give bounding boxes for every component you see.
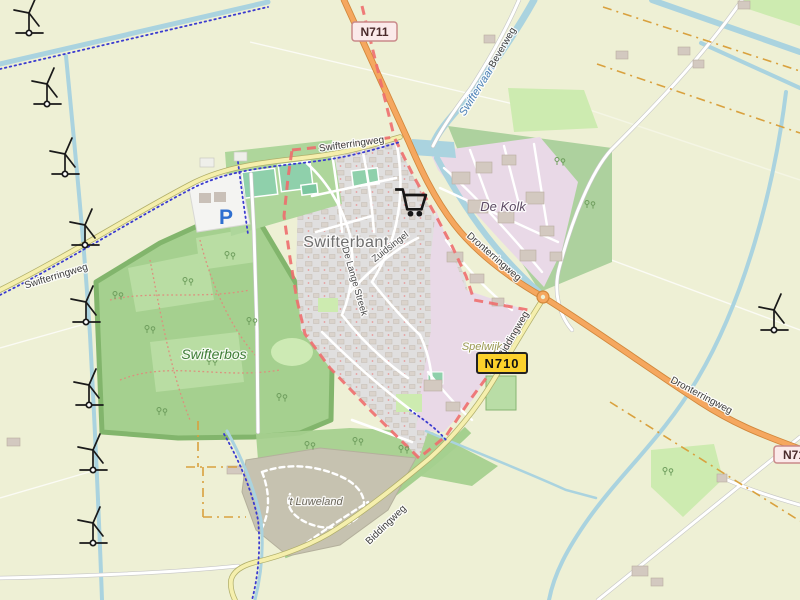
parking-icon: P — [219, 206, 233, 229]
route-badge-n710: N710 — [477, 353, 527, 373]
place-label-luweland: 't Luweland — [287, 496, 343, 508]
place-label-spelwijk: Spelwijk — [462, 341, 503, 353]
place-label-de-kolk: De Kolk — [480, 199, 527, 214]
svg-text:N710: N710 — [484, 356, 519, 371]
map-canvas[interactable]: P Swifterbant De Kolk Swifterbos Spelwij… — [0, 0, 800, 600]
route-badge-n71-partial: N71 — [774, 446, 800, 463]
place-label-swifterbos: Swifterbos — [181, 346, 246, 362]
route-badge-n711: N711 — [352, 22, 397, 41]
svg-text:N711: N711 — [360, 25, 388, 39]
svg-text:N71: N71 — [783, 448, 800, 462]
